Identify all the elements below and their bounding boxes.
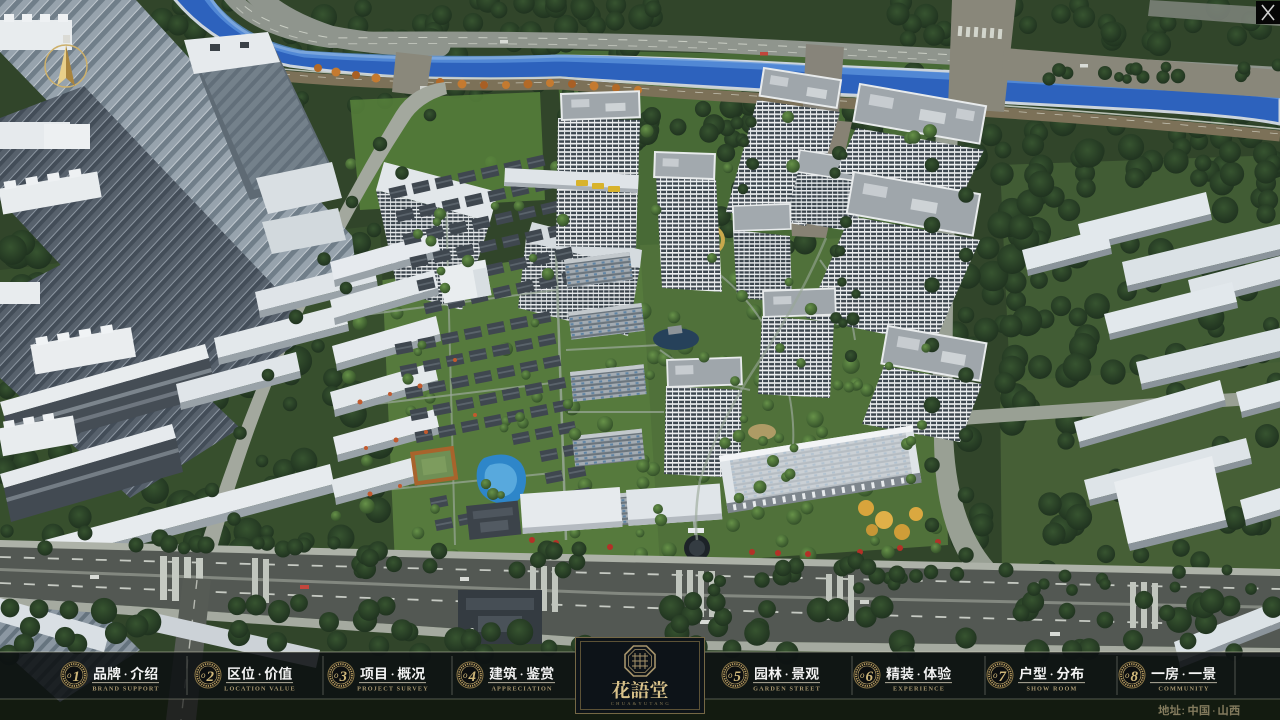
svg-text:o: o (993, 670, 998, 680)
svg-text:4: 4 (468, 669, 477, 685)
svg-text:o: o (728, 670, 733, 680)
svg-text:PROJECT SURVEY: PROJECT SURVEY (357, 685, 429, 692)
svg-text:6: 6 (866, 669, 874, 685)
svg-text:BRAND SUPPORT: BRAND SUPPORT (92, 685, 159, 692)
svg-text:8: 8 (1131, 669, 1139, 685)
svg-text:3: 3 (339, 669, 348, 685)
svg-text:GARDEN STREET: GARDEN STREET (753, 685, 821, 692)
svg-text:EXPERIENCE: EXPERIENCE (893, 685, 945, 692)
svg-text:COMMUNITY: COMMUNITY (1158, 685, 1209, 692)
svg-text:7: 7 (999, 669, 1007, 685)
svg-text:o: o (1125, 670, 1130, 680)
svg-text:o: o (334, 670, 339, 680)
svg-text:SHOW ROOM: SHOW ROOM (1027, 685, 1078, 692)
svg-text:2: 2 (206, 669, 215, 685)
svg-text:C H U A & Y U T A N G: C H U A & Y U T A N G (611, 701, 670, 706)
svg-text:o: o (201, 670, 206, 680)
svg-text:o: o (463, 670, 468, 680)
svg-text:o: o (860, 670, 865, 680)
svg-text:o: o (67, 670, 72, 680)
svg-text:LOCATION VALUE: LOCATION VALUE (224, 685, 296, 692)
svg-text:APPRECIATION: APPRECIATION (491, 685, 552, 692)
svg-text:5: 5 (734, 669, 742, 685)
svg-text:1: 1 (73, 669, 81, 685)
